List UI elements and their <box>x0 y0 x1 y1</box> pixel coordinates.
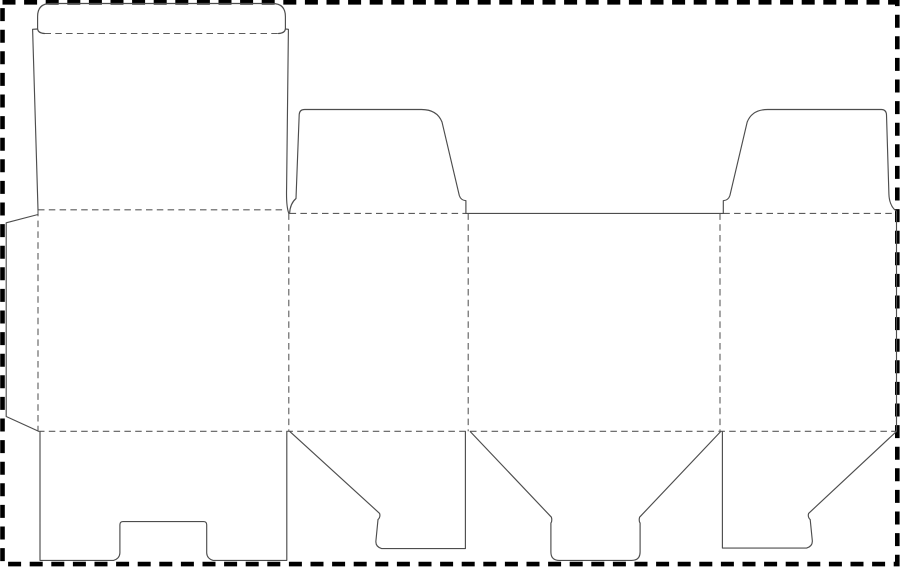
page-boundary-border <box>3 2 898 564</box>
tuck-flap-cut <box>38 4 286 34</box>
bottom-flap-left-angled-cut <box>290 432 466 549</box>
glue-flap-cut <box>6 215 38 432</box>
lid-panel-left-edge-cut <box>33 29 38 210</box>
bottom-lid-panel-notched-cut <box>40 432 287 561</box>
dieline-page <box>0 0 900 567</box>
box-dieline-drawing <box>0 0 900 567</box>
lid-panel-right-edge-cut <box>285 29 288 213</box>
dust-flap-right-cut <box>723 110 896 214</box>
bottom-flap-center-funnel-cut <box>470 432 720 561</box>
dust-flap-left-cut <box>290 110 466 214</box>
bottom-flap-right-angled-cut <box>722 431 896 548</box>
